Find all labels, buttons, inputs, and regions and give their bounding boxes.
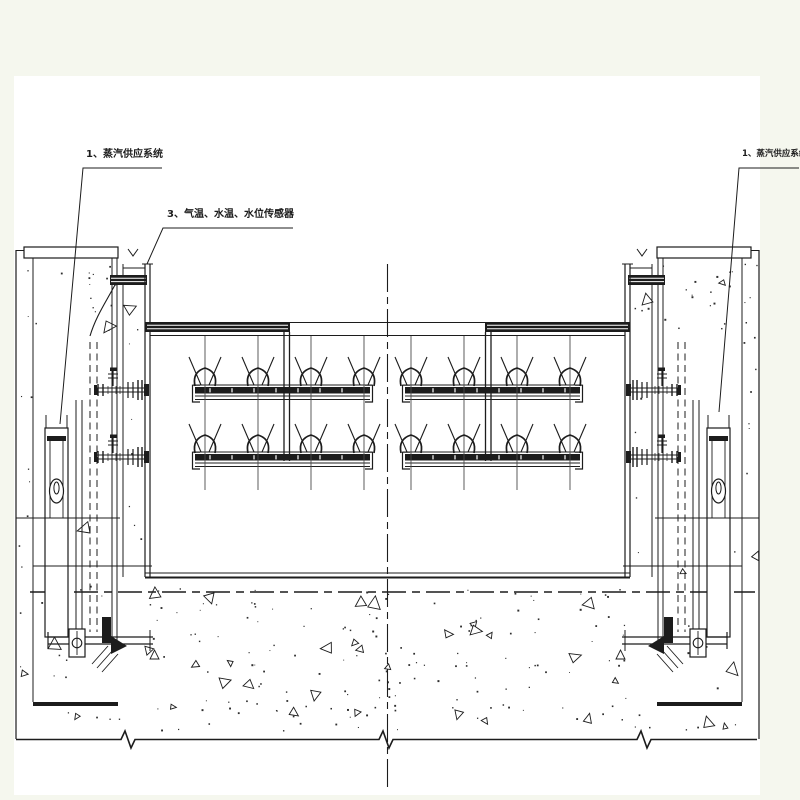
cad-section-drawing: 1、蒸汽供应系统 3、气温、水温、水位传感器 1、蒸汽供应系统 [0,0,800,800]
steam-supply-cylinder [45,428,68,637]
wall-cap-beam [24,247,118,258]
spray-manifold [193,452,373,469]
margin-left [0,0,14,800]
cylinder-cap [47,436,66,441]
steam-header-pipe [145,322,290,332]
spray-manifold [193,385,373,402]
sensor-label: 3、气温、水温、水位传感器 [167,207,295,220]
elbow-fitting [102,617,111,643]
margin-right [760,0,800,800]
cad-drawing-stage: 1、蒸汽供应系统 3、气温、水温、水位传感器 1、蒸汽供应系统 [0,0,800,800]
margin-top [0,0,800,76]
margin-bottom [0,795,800,800]
wall-channel-floor [33,702,118,706]
left-steam-label: 1、蒸汽供应系统 [86,147,163,160]
float-gauge [50,479,64,503]
right-steam-label: 1、蒸汽供应系统 [742,148,800,159]
